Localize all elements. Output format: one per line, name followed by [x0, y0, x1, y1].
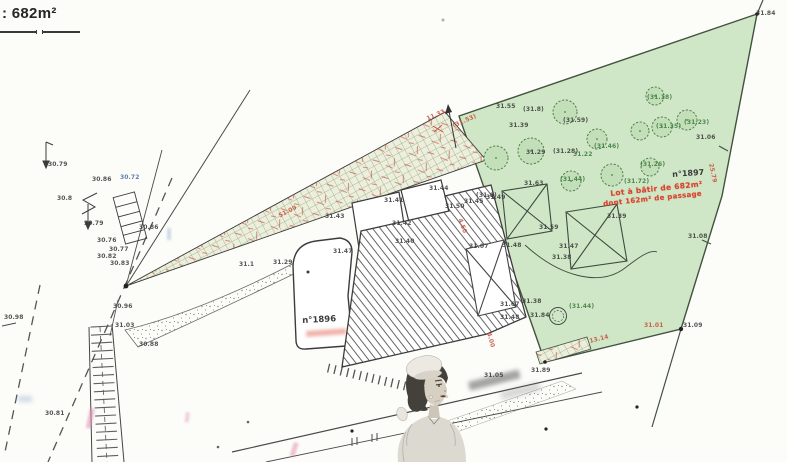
- elevation-label: 31.44: [429, 186, 448, 192]
- elevation-label: 31.50: [445, 204, 464, 210]
- elevation-label: 30.83: [110, 261, 129, 267]
- benchmark-symbols: [43, 142, 97, 229]
- elevation-label: 30.79: [84, 221, 103, 227]
- elevation-label: 31.59: [539, 225, 558, 231]
- lot-1896-number: n°1896: [302, 315, 336, 325]
- elevation-label: 31.39: [607, 214, 626, 220]
- elevation-label: 31.38: [552, 255, 571, 261]
- elevation-label: 31.03: [115, 323, 134, 329]
- elevation-label: 31.84: [530, 313, 549, 319]
- elevation-label: 31.48: [500, 315, 519, 321]
- elevation-label: 31.06: [696, 135, 715, 141]
- elevation-label: 31.40: [395, 239, 414, 245]
- elevation-label: 31.09: [683, 323, 702, 329]
- retaining-wall-strip: [89, 324, 124, 462]
- elevation-label: 30.88: [139, 342, 158, 348]
- elevation-label: 31.47: [559, 244, 578, 250]
- elevation-label: 30.79: [48, 162, 67, 168]
- plan-drawing: [0, 0, 787, 462]
- area-legend-label: : 682m²: [2, 5, 57, 22]
- elevation-label: (31.18): [647, 95, 672, 101]
- elevation-label: 31.47: [333, 249, 352, 255]
- elevation-label: 30.86: [139, 225, 158, 231]
- elevation-label: (31.44): [560, 177, 585, 183]
- elevation-label: 31.43: [325, 214, 344, 220]
- elevation-label: (31.72): [624, 179, 649, 185]
- elevation-label: 31.63: [524, 181, 543, 187]
- elevation-label: 31.48: [502, 243, 521, 249]
- elevation-label: 30.76: [97, 238, 116, 244]
- elevation-label: 31.05: [484, 373, 503, 379]
- elevation-label: (31.8): [523, 107, 544, 113]
- elevation-label: 30.72: [120, 175, 139, 181]
- elevation-label: 31.49: [486, 195, 505, 201]
- elevation-label: 31.01: [644, 323, 663, 329]
- elevation-label: 31.45: [464, 199, 483, 205]
- elevation-label: (31.35): [656, 124, 681, 130]
- elevation-label: (31.26): [640, 162, 665, 168]
- elevation-label: (31.23): [684, 120, 709, 126]
- elevation-label: 30.81: [45, 411, 64, 417]
- elevation-label: (31.59): [563, 118, 588, 124]
- elevation-label: 31.67: [500, 302, 519, 308]
- elevation-label: 30.8: [57, 196, 72, 202]
- scale-bar: [0, 31, 80, 33]
- elevation-label: 31.29: [273, 260, 292, 266]
- elevation-label: (31.46): [594, 144, 619, 150]
- stair-structure: [113, 192, 147, 244]
- woman-photo: [395, 352, 466, 462]
- elevation-label: 31.07: [469, 244, 488, 250]
- elevation-label: 31.29: [526, 150, 545, 156]
- fence-ticks: [328, 368, 418, 389]
- site-plan: : 682m² n°1897 Lot à bâtir de 682m² dont…: [0, 0, 787, 462]
- elevation-label: 31.89: [531, 368, 550, 374]
- left-boundary-lines: [2, 90, 250, 336]
- elevation-label: 30.96: [113, 304, 132, 310]
- elevation-label: 31.08: [688, 234, 707, 240]
- elevation-label: 31.22: [573, 152, 592, 158]
- elevation-label: 31.41: [384, 198, 403, 204]
- elevation-label: 31.39: [509, 123, 528, 129]
- elevation-label: 31.84: [756, 11, 775, 17]
- elevation-label: 31.1: [239, 262, 254, 268]
- elevation-label: 30.86: [92, 177, 111, 183]
- elevation-label: (31.44): [569, 304, 594, 310]
- elevation-label: 31.42: [392, 221, 411, 227]
- elevation-label: 31.38: [522, 299, 541, 305]
- elevation-label: 31.55: [496, 104, 515, 110]
- woman-neck: [428, 403, 440, 418]
- elevation-label: 30.98: [4, 315, 23, 321]
